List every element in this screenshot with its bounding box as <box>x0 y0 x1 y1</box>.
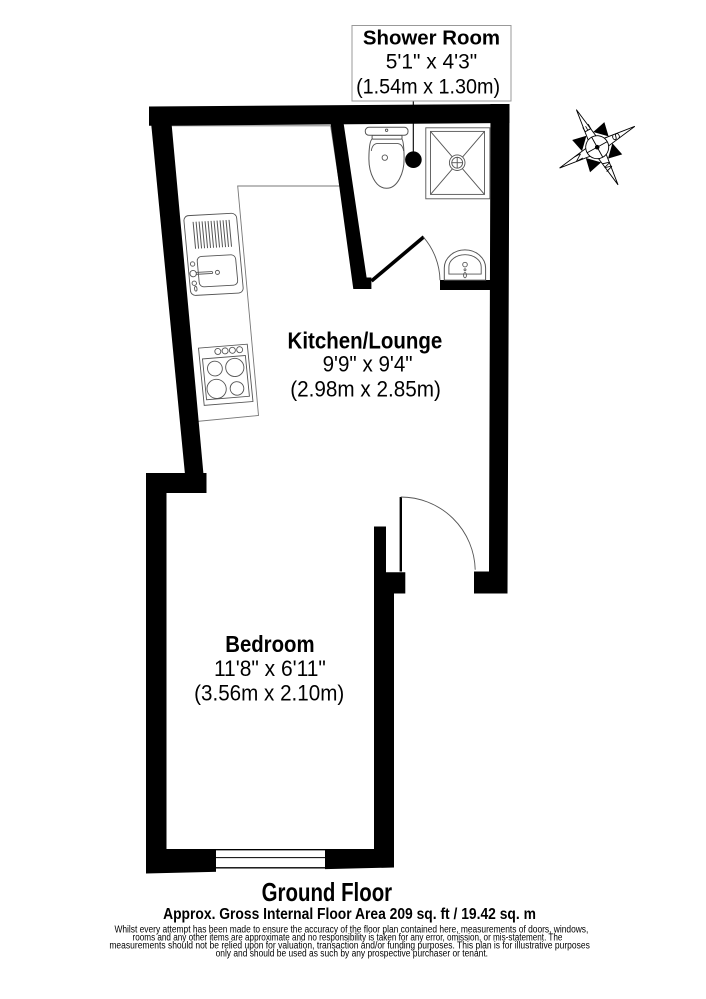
svg-text:5'1" x 4'3": 5'1" x 4'3" <box>386 51 478 74</box>
svg-text:9'9" x 9'4": 9'9" x 9'4" <box>323 352 413 377</box>
svg-text:Ground Floor: Ground Floor <box>262 877 393 907</box>
svg-text:(1.54m x 1.30m): (1.54m x 1.30m) <box>356 76 500 99</box>
svg-text:Kitchen/Lounge: Kitchen/Lounge <box>288 328 443 354</box>
svg-text:Approx. Gross Internal Floor A: Approx. Gross Internal Floor Area 209 sq… <box>163 906 536 923</box>
svg-text:11'8" x 6'11": 11'8" x 6'11" <box>214 656 326 681</box>
svg-text:only and should be used as suc: only and should be used as such by any p… <box>216 948 488 959</box>
svg-text:(2.98m x 2.85m): (2.98m x 2.85m) <box>290 377 441 402</box>
svg-text:Bedroom: Bedroom <box>225 631 314 657</box>
svg-text:Shower Room: Shower Room <box>363 27 500 50</box>
svg-text:(3.56m x 2.10m): (3.56m x 2.10m) <box>194 681 344 706</box>
